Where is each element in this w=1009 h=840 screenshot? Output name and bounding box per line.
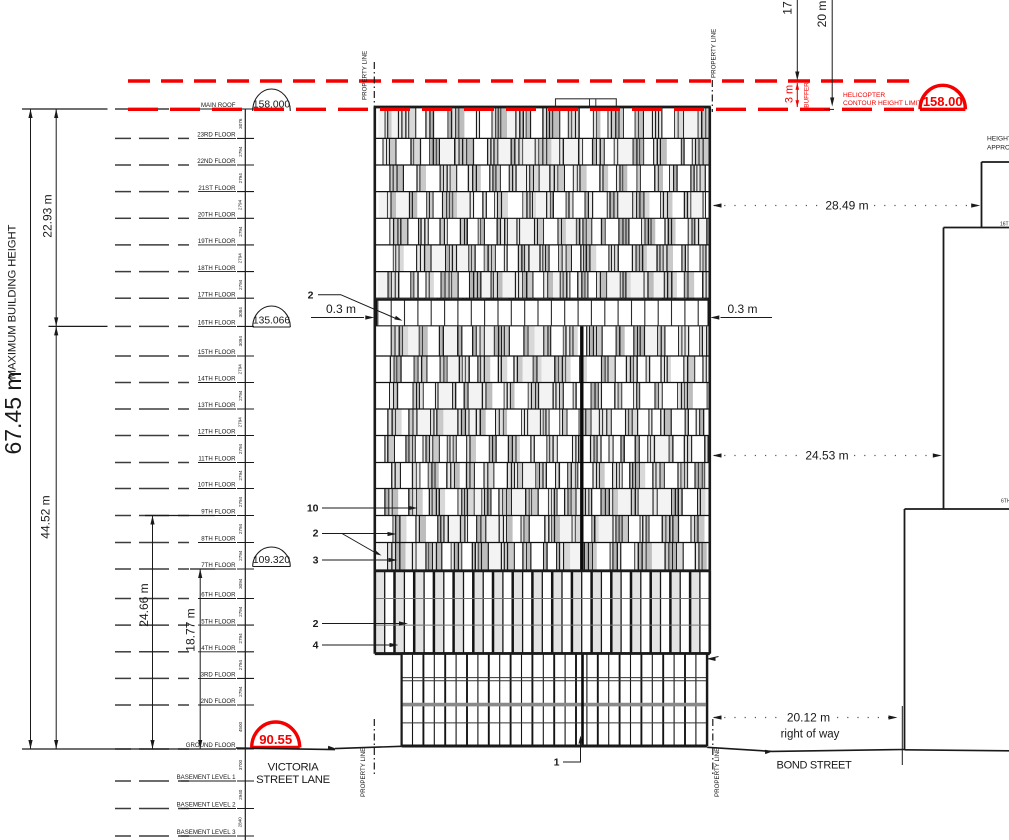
svg-text:17TH FLOOR: 17TH FLOOR (198, 291, 236, 298)
svg-text:2794: 2794 (238, 470, 243, 481)
svg-text:10: 10 (307, 503, 319, 515)
svg-text:2794: 2794 (238, 686, 243, 697)
svg-text:135.066: 135.066 (253, 316, 290, 327)
svg-text:14TH FLOOR: 14TH FLOOR (198, 376, 236, 383)
svg-text:158.00: 158.00 (923, 94, 963, 109)
svg-text:BASEMENT LEVEL 2: BASEMENT LEVEL 2 (177, 802, 237, 809)
svg-text:15TH FLOOR: 15TH FLOOR (198, 349, 236, 356)
svg-text:HELICOPTER: HELICOPTER (843, 92, 885, 99)
svg-text:11TH FLOOR: 11TH FLOOR (198, 456, 236, 463)
svg-text:24.66 m: 24.66 m (137, 583, 151, 626)
svg-text:12TH FLOOR: 12TH FLOOR (198, 429, 236, 436)
svg-text:2794: 2794 (238, 390, 243, 401)
svg-text:3076: 3076 (238, 118, 243, 129)
svg-text:6TH FLOOR: 6TH FLOOR (201, 592, 236, 599)
svg-text:2794: 2794 (238, 633, 243, 644)
svg-text:20 m: 20 m (815, 1, 829, 28)
svg-text:2794: 2794 (238, 199, 243, 210)
svg-text:PROPERTY LINE: PROPERTY LINE (714, 748, 721, 797)
svg-text:2794: 2794 (238, 606, 243, 617)
svg-text:2794: 2794 (238, 660, 243, 671)
svg-text:109.320: 109.320 (253, 555, 290, 566)
svg-text:2794: 2794 (238, 417, 243, 428)
svg-text:CONTOUR HEIGHT LIMIT: CONTOUR HEIGHT LIMIT (843, 100, 922, 107)
svg-text:2794: 2794 (238, 226, 243, 237)
svg-text:1: 1 (554, 757, 560, 769)
svg-text:right of way: right of way (781, 729, 840, 741)
svg-text:22.93 m: 22.93 m (41, 194, 55, 237)
svg-text:2794: 2794 (238, 443, 243, 454)
svg-text:2794: 2794 (238, 364, 243, 375)
svg-text:67.45 m: 67.45 m (0, 371, 26, 454)
svg-text:3RD FLOOR: 3RD FLOOR (201, 672, 236, 679)
svg-text:4TH FLOOR: 4TH FLOOR (201, 645, 236, 652)
svg-text:24.53 m: 24.53 m (805, 449, 848, 463)
svg-text:2840: 2840 (238, 817, 243, 828)
svg-text:17: 17 (781, 1, 795, 15)
svg-text:GROUND FLOOR: GROUND FLOOR (186, 742, 236, 749)
svg-text:3084: 3084 (238, 307, 243, 318)
svg-text:3: 3 (313, 555, 319, 567)
svg-text:3094: 3094 (238, 578, 243, 589)
svg-text:HEIGHT OF: HEIGHT OF (987, 136, 1009, 143)
svg-text:90.55: 90.55 (259, 732, 292, 747)
svg-text:2ND FLOOR: 2ND FLOOR (201, 698, 236, 705)
svg-text:BOND STREET: BOND STREET (777, 760, 853, 772)
svg-text:7TH FLOOR: 7TH FLOOR (201, 562, 236, 569)
svg-text:2794: 2794 (238, 523, 243, 534)
svg-text:2794: 2794 (238, 279, 243, 290)
svg-text:BASEMENT LEVEL 1: BASEMENT LEVEL 1 (177, 774, 237, 781)
svg-text:PROPERTY LINE: PROPERTY LINE (362, 51, 369, 100)
svg-text:4500: 4500 (238, 721, 243, 732)
svg-text:3 m: 3 m (784, 85, 796, 103)
svg-text:2794: 2794 (238, 173, 243, 184)
svg-text:2: 2 (313, 618, 319, 630)
svg-text:21ST FLOOR: 21ST FLOOR (198, 185, 236, 192)
svg-text:4: 4 (313, 640, 319, 652)
svg-text:10TH FLOOR: 10TH FLOOR (198, 482, 236, 489)
svg-text:0.3 m: 0.3 m (326, 302, 356, 316)
svg-text:MAXIMUM BUILDING HEIGHT: MAXIMUM BUILDING HEIGHT (7, 225, 19, 380)
svg-text:13TH FLOOR: 13TH FLOOR (198, 402, 236, 409)
svg-text:VICTORIA: VICTORIA (268, 762, 320, 774)
svg-text:18.77 m: 18.77 m (184, 608, 198, 651)
svg-text:2794: 2794 (238, 496, 243, 507)
svg-text:22ND FLOOR: 22ND FLOOR (197, 158, 236, 165)
svg-text:PROPERTY LINE: PROPERTY LINE (360, 748, 367, 797)
svg-text:3094: 3094 (238, 336, 243, 347)
svg-text:20.12 m: 20.12 m (787, 711, 830, 725)
svg-text:16TH FLOOR: 16TH FLOOR (198, 320, 236, 327)
svg-text:2: 2 (308, 290, 314, 302)
svg-text:23RD FLOOR: 23RD FLOOR (197, 132, 236, 139)
svg-text:2794: 2794 (238, 550, 243, 561)
svg-text:2940: 2940 (238, 789, 243, 800)
svg-text:5TH FLOOR: 5TH FLOOR (201, 618, 236, 625)
svg-text:APPROVED: APPROVED (987, 145, 1009, 152)
svg-text:0.3 m: 0.3 m (728, 302, 758, 316)
svg-text:9TH FLOOR: 9TH FLOOR (201, 509, 236, 516)
svg-text:2: 2 (313, 528, 319, 540)
svg-text:18TH FLOOR: 18TH FLOOR (198, 265, 236, 272)
svg-text:28.49 m: 28.49 m (825, 199, 868, 213)
svg-text:BASEMENT LEVEL 3: BASEMENT LEVEL 3 (177, 829, 237, 836)
svg-text:19TH FLOOR: 19TH FLOOR (198, 238, 236, 245)
svg-text:8TH FLOOR: 8TH FLOOR (201, 536, 236, 543)
svg-text:44.52 m: 44.52 m (39, 495, 53, 538)
svg-text:2794: 2794 (238, 253, 243, 264)
svg-text:16TH FL: 16TH FL (1000, 222, 1009, 228)
svg-text:2794: 2794 (238, 146, 243, 157)
svg-text:PROPERTY LINE: PROPERTY LINE (711, 29, 718, 78)
svg-text:20TH FLOOR: 20TH FLOOR (198, 212, 236, 219)
svg-text:BUFFER: BUFFER (804, 82, 811, 108)
svg-text:6TH FL: 6TH FL (1001, 499, 1009, 505)
svg-text:3700: 3700 (238, 759, 243, 770)
svg-text:STREET LANE: STREET LANE (256, 774, 330, 786)
